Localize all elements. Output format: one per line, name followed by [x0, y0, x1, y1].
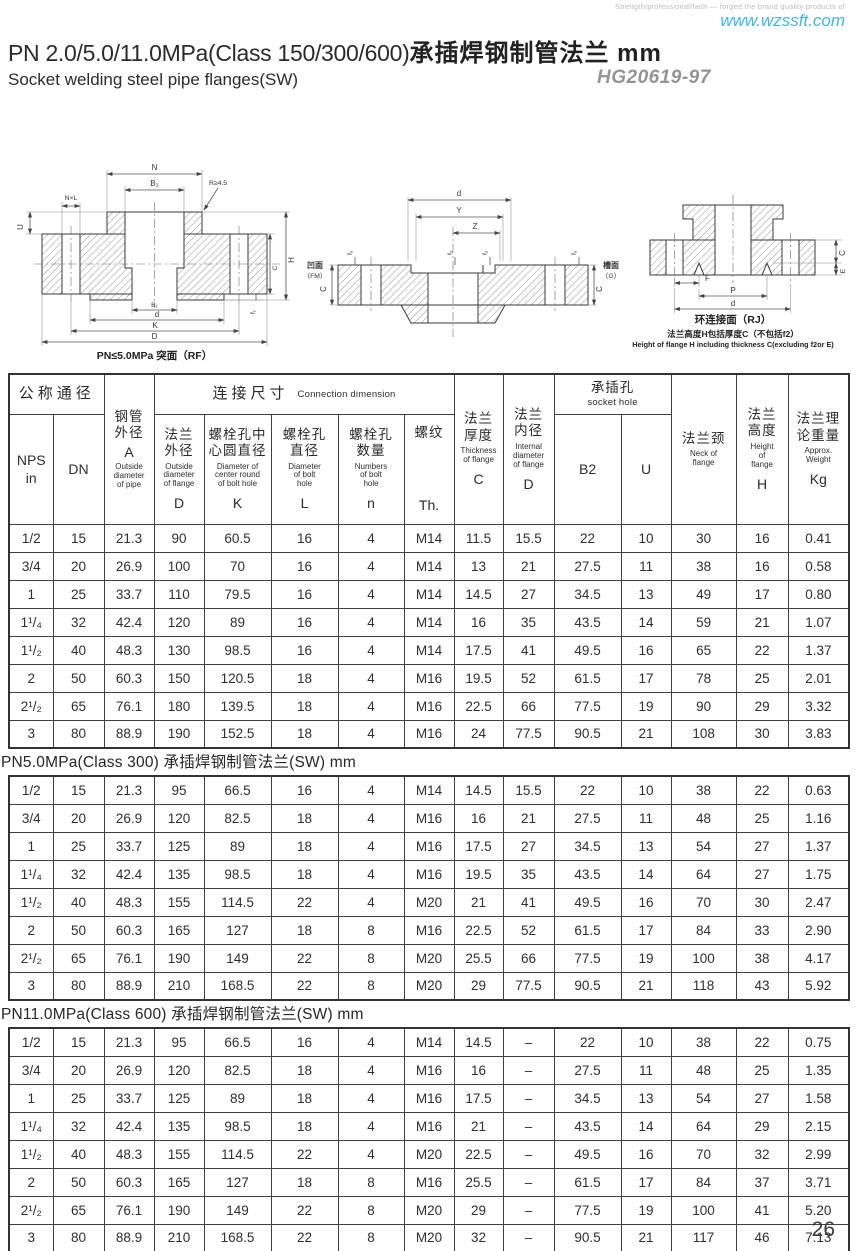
- cell-h: 22: [736, 636, 788, 664]
- cell-di: 77.5: [503, 972, 554, 1000]
- cell-dn: 80: [53, 720, 104, 748]
- table-row: 38088.9190152.5184M162477.590.521108303.…: [9, 720, 849, 748]
- cell-b2: 43.5: [554, 1112, 621, 1140]
- cell-di: 41: [503, 888, 554, 916]
- table-row: 1¹/₂4048.3155114.5224M20214149.51670302.…: [9, 888, 849, 916]
- cell-h: 25: [736, 804, 788, 832]
- cell-n: 4: [338, 580, 404, 608]
- cell-d: 190: [154, 720, 204, 748]
- cell-dn: 20: [53, 552, 104, 580]
- cell-kg: 2.99: [788, 1140, 849, 1168]
- cell-h: 30: [736, 888, 788, 916]
- cell-th: M20: [404, 1224, 454, 1251]
- cell-b2: 77.5: [554, 692, 621, 720]
- cell-h: 41: [736, 1196, 788, 1224]
- cell-nps: 2¹/₂: [9, 1196, 53, 1224]
- cell-kg: 2.01: [788, 664, 849, 692]
- cell-u: 16: [621, 1140, 671, 1168]
- cell-nps: 3: [9, 972, 53, 1000]
- header-u: U: [621, 414, 671, 524]
- cell-h: 22: [736, 776, 788, 804]
- cell-th: M20: [404, 944, 454, 972]
- cell-c: 13: [454, 552, 503, 580]
- dim-label-c-left: C: [319, 286, 328, 292]
- cell-u: 14: [621, 860, 671, 888]
- cell-h: 16: [736, 552, 788, 580]
- spec-table-block: 公称通径 钢管 外径AOutside diameter of pipe 连接尺寸…: [0, 373, 855, 1251]
- cell-d: 165: [154, 1168, 204, 1196]
- cell-n: 8: [338, 1196, 404, 1224]
- cell-l: 22: [271, 944, 338, 972]
- cell-h: 29: [736, 692, 788, 720]
- cell-l: 18: [271, 720, 338, 748]
- cell-h: 27: [736, 832, 788, 860]
- cell-h: 37: [736, 1168, 788, 1196]
- cell-k: 60.5: [204, 524, 271, 552]
- cell-th: M14: [404, 580, 454, 608]
- cell-k: 98.5: [204, 860, 271, 888]
- cell-neck: 59: [671, 608, 736, 636]
- cell-h: 38: [736, 944, 788, 972]
- table-row: 3/42026.910070164M14132127.51138160.58: [9, 552, 849, 580]
- cell-kg: 2.90: [788, 916, 849, 944]
- cell-u: 16: [621, 888, 671, 916]
- cell-h: 29: [736, 1112, 788, 1140]
- cell-nps: 3/4: [9, 1056, 53, 1084]
- dim-label-b1: B₁: [151, 302, 159, 309]
- cell-neck: 65: [671, 636, 736, 664]
- cell-c: 17.5: [454, 832, 503, 860]
- cell-b2: 27.5: [554, 1056, 621, 1084]
- cell-a: 33.7: [104, 1084, 154, 1112]
- cell-l: 22: [271, 1196, 338, 1224]
- cell-h: 33: [736, 916, 788, 944]
- flange-rj-section-drawing: C E F P d 环连接面（RJ） 法兰高度H包括厚度C（不包括f2） Hei…: [620, 155, 855, 350]
- cell-neck: 30: [671, 524, 736, 552]
- dim-label-k: K: [152, 321, 158, 330]
- cell-dn: 32: [53, 1112, 104, 1140]
- dim-label-r: R≥4.5: [209, 180, 227, 187]
- dim-label-p: P: [730, 286, 735, 295]
- cell-h: 46: [736, 1224, 788, 1251]
- cell-th: M16: [404, 916, 454, 944]
- cell-b2: 90.5: [554, 1224, 621, 1251]
- cell-d: 165: [154, 916, 204, 944]
- cell-d: 180: [154, 692, 204, 720]
- cell-u: 17: [621, 1168, 671, 1196]
- cell-nps: 3/4: [9, 804, 53, 832]
- cell-c: 24: [454, 720, 503, 748]
- cell-d: 210: [154, 1224, 204, 1251]
- cell-k: 168.5: [204, 972, 271, 1000]
- cell-kg: 4.17: [788, 944, 849, 972]
- cell-c: 25.5: [454, 944, 503, 972]
- cell-d: 90: [154, 524, 204, 552]
- cell-n: 4: [338, 804, 404, 832]
- dim-label-h: H: [287, 257, 296, 263]
- cell-n: 8: [338, 1224, 404, 1251]
- cell-dn: 50: [53, 664, 104, 692]
- face-label-g-en: （G）: [602, 272, 621, 280]
- cell-k: 79.5: [204, 580, 271, 608]
- cell-nps: 3/4: [9, 552, 53, 580]
- cell-a: 26.9: [104, 804, 154, 832]
- cell-c: 25.5: [454, 1168, 503, 1196]
- cell-di: 52: [503, 916, 554, 944]
- cell-dn: 50: [53, 916, 104, 944]
- cell-di: 15.5: [503, 524, 554, 552]
- cell-a: 76.1: [104, 944, 154, 972]
- cell-a: 88.9: [104, 1224, 154, 1251]
- table-row: 1¹/₄3242.413598.5184M1621–43.51464292.15: [9, 1112, 849, 1140]
- cell-c: 11.5: [454, 524, 503, 552]
- cell-k: 89: [204, 1084, 271, 1112]
- cell-nps: 1¹/₂: [9, 636, 53, 664]
- header-neck-of-flange: 法兰颈Neck of flange: [671, 374, 736, 524]
- cell-k: 66.5: [204, 1028, 271, 1056]
- cell-th: M14: [404, 636, 454, 664]
- cell-kg: 1.35: [788, 1056, 849, 1084]
- cell-a: 48.3: [104, 1140, 154, 1168]
- cell-nps: 2: [9, 1168, 53, 1196]
- cell-b2: 49.5: [554, 888, 621, 916]
- cell-l: 16: [271, 1028, 338, 1056]
- cell-d: 135: [154, 1112, 204, 1140]
- cell-n: 4: [338, 664, 404, 692]
- cell-di: –: [503, 1056, 554, 1084]
- page-subtitle: Socket welding steel pipe flanges(SW): [8, 70, 298, 90]
- cell-k: 149: [204, 1196, 271, 1224]
- cell-a: 88.9: [104, 972, 154, 1000]
- dim-label-y: Y: [456, 206, 462, 215]
- cell-u: 21: [621, 972, 671, 1000]
- cell-kg: 1.75: [788, 860, 849, 888]
- table-row: 25060.3165127188M1622.55261.51784332.90: [9, 916, 849, 944]
- cell-a: 60.3: [104, 916, 154, 944]
- cell-n: 4: [338, 832, 404, 860]
- cell-b2: 77.5: [554, 944, 621, 972]
- cell-l: 22: [271, 1140, 338, 1168]
- cell-k: 127: [204, 916, 271, 944]
- cell-d: 100: [154, 552, 204, 580]
- cell-th: M16: [404, 1056, 454, 1084]
- cell-k: 127: [204, 1168, 271, 1196]
- cell-di: 27: [503, 832, 554, 860]
- cell-nps: 1¹/₄: [9, 1112, 53, 1140]
- table-row: 1/21521.39566.5164M1414.515.5221038220.6…: [9, 776, 849, 804]
- table-row: 2¹/₂6576.1190149228M2025.56677.519100384…: [9, 944, 849, 972]
- cell-di: –: [503, 1084, 554, 1112]
- cell-kg: 3.32: [788, 692, 849, 720]
- brand-tagline: Strength/professional/faith — forged the…: [615, 2, 845, 11]
- cell-c: 19.5: [454, 860, 503, 888]
- cell-a: 48.3: [104, 888, 154, 916]
- cell-u: 21: [621, 1224, 671, 1251]
- dim-label-f2c: f₂: [482, 250, 489, 255]
- cell-nps: 1¹/₂: [9, 1140, 53, 1168]
- flange-rf-section-drawing: N B₂ N×L R≥4.5 U H C f₁ B₁ d K D PN≤5.0M…: [12, 150, 302, 365]
- cell-d: 190: [154, 1196, 204, 1224]
- cell-b2: 22: [554, 524, 621, 552]
- cell-a: 60.3: [104, 1168, 154, 1196]
- cell-nps: 1: [9, 580, 53, 608]
- cell-c: 16: [454, 804, 503, 832]
- cell-k: 89: [204, 608, 271, 636]
- cell-d: 210: [154, 972, 204, 1000]
- cell-nps: 3: [9, 1224, 53, 1251]
- cell-h: 43: [736, 972, 788, 1000]
- dim-label-u: U: [16, 224, 25, 230]
- table-row: 1¹/₂4048.3155114.5224M2022.5–49.51670322…: [9, 1140, 849, 1168]
- cell-nps: 2: [9, 664, 53, 692]
- cell-b2: 43.5: [554, 608, 621, 636]
- cell-nps: 1: [9, 1084, 53, 1112]
- cell-c: 22.5: [454, 1140, 503, 1168]
- dim-label-d3: d: [731, 299, 735, 308]
- dim-label-nxl: N×L: [65, 195, 78, 202]
- face-label-fm-cn: 凹面: [307, 261, 323, 270]
- cell-b2: 43.5: [554, 860, 621, 888]
- cell-h: 30: [736, 720, 788, 748]
- cell-u: 10: [621, 1028, 671, 1056]
- cell-n: 4: [338, 776, 404, 804]
- cell-k: 70: [204, 552, 271, 580]
- cell-di: 35: [503, 860, 554, 888]
- cell-dn: 20: [53, 804, 104, 832]
- cell-th: M20: [404, 1140, 454, 1168]
- cell-k: 114.5: [204, 1140, 271, 1168]
- cell-nps: 1¹/₂: [9, 888, 53, 916]
- cell-b2: 27.5: [554, 804, 621, 832]
- cell-c: 19.5: [454, 664, 503, 692]
- cell-b2: 61.5: [554, 664, 621, 692]
- cell-nps: 1: [9, 832, 53, 860]
- header-b2: B2: [554, 414, 621, 524]
- cell-h: 25: [736, 1056, 788, 1084]
- cell-d: 95: [154, 776, 204, 804]
- cell-a: 76.1: [104, 692, 154, 720]
- cell-l: 18: [271, 804, 338, 832]
- header-bolt-circle: 螺栓孔中 心圆直径Diameter of center round of bol…: [204, 414, 271, 524]
- cell-dn: 25: [53, 832, 104, 860]
- cell-neck: 70: [671, 1140, 736, 1168]
- table-row: 12533.711079.5164M1414.52734.51349170.80: [9, 580, 849, 608]
- cell-nps: 1/2: [9, 524, 53, 552]
- cell-neck: 49: [671, 580, 736, 608]
- cell-l: 18: [271, 1168, 338, 1196]
- cell-neck: 64: [671, 1112, 736, 1140]
- cell-nps: 2: [9, 916, 53, 944]
- page-title: PN 2.0/5.0/11.0MPa(Class 150/300/600)承插焊…: [8, 33, 662, 68]
- cell-dn: 80: [53, 1224, 104, 1251]
- header-connection-group: 连接尺寸Connection dimension: [154, 374, 454, 414]
- cell-d: 95: [154, 1028, 204, 1056]
- header-pipe-od: 钢管 外径AOutside diameter of pipe: [104, 374, 154, 524]
- cell-th: M20: [404, 1196, 454, 1224]
- cell-a: 33.7: [104, 832, 154, 860]
- cell-kg: 0.63: [788, 776, 849, 804]
- cell-h: 17: [736, 580, 788, 608]
- cell-n: 4: [338, 1056, 404, 1084]
- flange-fm-g-section-drawing: d Y Z f₂ f₂ f₂ f₂ C C 凹面 （FM） 槽面 （G）: [303, 165, 623, 350]
- dim-label-f2b: f₂: [447, 250, 454, 255]
- cell-b2: 34.5: [554, 580, 621, 608]
- standard-number: HG20619-97: [597, 67, 711, 89]
- cell-di: 66: [503, 944, 554, 972]
- cell-th: M14: [404, 524, 454, 552]
- cell-b2: 61.5: [554, 1168, 621, 1196]
- table-row: 38088.9210168.5228M2032–90.521117467.13: [9, 1224, 849, 1251]
- cell-kg: 1.37: [788, 832, 849, 860]
- cell-d: 150: [154, 664, 204, 692]
- cell-kg: 1.37: [788, 636, 849, 664]
- header-approx-weight: 法兰理 论重量Approx. WeightKg: [788, 374, 849, 524]
- section-class300-body: 1/21521.39566.5164M1414.515.5221038220.6…: [9, 776, 849, 1000]
- cell-di: –: [503, 1168, 554, 1196]
- cell-c: 21: [454, 1112, 503, 1140]
- cell-di: 77.5: [503, 720, 554, 748]
- cell-neck: 70: [671, 888, 736, 916]
- dim-label-f2a: f₂: [347, 250, 354, 255]
- cell-kg: 2.15: [788, 1112, 849, 1140]
- header-flange-height: 法兰 高度Height of flangeH: [736, 374, 788, 524]
- cell-nps: 1/2: [9, 776, 53, 804]
- cell-di: –: [503, 1140, 554, 1168]
- dim-label-d: d: [155, 310, 159, 319]
- cell-u: 10: [621, 776, 671, 804]
- cell-neck: 38: [671, 776, 736, 804]
- cell-di: 21: [503, 552, 554, 580]
- cell-th: M16: [404, 860, 454, 888]
- table-row: 1/21521.39060.5164M1411.515.5221030160.4…: [9, 524, 849, 552]
- cell-neck: 48: [671, 1056, 736, 1084]
- cell-n: 4: [338, 636, 404, 664]
- cell-th: M16: [404, 804, 454, 832]
- cell-neck: 38: [671, 1028, 736, 1056]
- section-title-class300: PN5.0MPa(Class 300) 承插焊钢制管法兰(SW) mm: [0, 749, 855, 775]
- header-flange-od: 法兰 外径Outside diameter of flangeD: [154, 414, 204, 524]
- cell-neck: 54: [671, 832, 736, 860]
- cell-neck: 64: [671, 860, 736, 888]
- dim-label-c: C: [272, 265, 279, 270]
- cell-b2: 77.5: [554, 1196, 621, 1224]
- cell-c: 17.5: [454, 1084, 503, 1112]
- cell-k: 149: [204, 944, 271, 972]
- dim-label-f2d: f₂: [571, 250, 578, 255]
- cell-d: 155: [154, 888, 204, 916]
- cell-b2: 22: [554, 1028, 621, 1056]
- spec-table-header: 公称通径 钢管 外径AOutside diameter of pipe 连接尺寸…: [9, 374, 849, 524]
- header-bolt-hole-diameter: 螺栓孔 直径Diameter of bolt holeL: [271, 414, 338, 524]
- section-class150-body: 1/21521.39060.5164M1411.515.5221030160.4…: [9, 524, 849, 748]
- cell-th: M20: [404, 888, 454, 916]
- cell-a: 21.3: [104, 776, 154, 804]
- cell-kg: 5.92: [788, 972, 849, 1000]
- cell-di: 66: [503, 692, 554, 720]
- cell-dn: 32: [53, 608, 104, 636]
- face-label-fm-en: （FM）: [303, 272, 326, 280]
- cell-neck: 117: [671, 1224, 736, 1251]
- cell-k: 82.5: [204, 1056, 271, 1084]
- cell-n: 8: [338, 1168, 404, 1196]
- page-title-en: PN 2.0/5.0/11.0MPa(Class 150/300/600): [8, 40, 409, 66]
- cell-nps: 3: [9, 720, 53, 748]
- cell-di: 52: [503, 664, 554, 692]
- website-url: www.wzssft.com: [720, 11, 845, 31]
- cell-dn: 40: [53, 636, 104, 664]
- cell-k: 98.5: [204, 1112, 271, 1140]
- cell-nps: 1/2: [9, 1028, 53, 1056]
- cell-a: 42.4: [104, 1112, 154, 1140]
- spec-table-class300: 1/21521.39566.5164M1414.515.5221038220.6…: [8, 775, 850, 1001]
- cell-n: 4: [338, 524, 404, 552]
- cell-b2: 22: [554, 776, 621, 804]
- cell-nps: 2¹/₂: [9, 692, 53, 720]
- cell-u: 19: [621, 692, 671, 720]
- cell-dn: 20: [53, 1056, 104, 1084]
- table-row: 2¹/₂6576.1190149228M2029–77.519100415.20: [9, 1196, 849, 1224]
- cell-kg: 3.83: [788, 720, 849, 748]
- cell-n: 8: [338, 944, 404, 972]
- cell-th: M14: [404, 1028, 454, 1056]
- cell-n: 8: [338, 916, 404, 944]
- cell-kg: 0.80: [788, 580, 849, 608]
- cell-c: 14.5: [454, 1028, 503, 1056]
- cell-dn: 50: [53, 1168, 104, 1196]
- cell-d: 155: [154, 1140, 204, 1168]
- cell-n: 4: [338, 1084, 404, 1112]
- cell-u: 19: [621, 944, 671, 972]
- drawing-rj-note-en: Height of flange H including thickness C…: [632, 340, 834, 349]
- cell-d: 130: [154, 636, 204, 664]
- catalog-page: Strength/professional/faith — forged the…: [0, 0, 855, 1251]
- cell-u: 13: [621, 832, 671, 860]
- cell-l: 22: [271, 972, 338, 1000]
- cell-a: 26.9: [104, 1056, 154, 1084]
- cell-l: 16: [271, 552, 338, 580]
- drawing-rj-note-cn: 法兰高度H包括厚度C（不包括f2）: [667, 328, 799, 339]
- cell-l: 22: [271, 1224, 338, 1251]
- table-row: 3/42026.912082.5184M16162127.51148251.16: [9, 804, 849, 832]
- cell-n: 4: [338, 608, 404, 636]
- cell-b2: 27.5: [554, 552, 621, 580]
- cell-nps: 2¹/₂: [9, 944, 53, 972]
- header-flange-thickness: 法兰 厚度Thickness of flangeC: [454, 374, 503, 524]
- table-row: 12533.712589184M1617.5–34.51354271.58: [9, 1084, 849, 1112]
- cell-neck: 100: [671, 944, 736, 972]
- page-number: 26: [812, 1218, 835, 1242]
- cell-a: 88.9: [104, 720, 154, 748]
- cell-u: 17: [621, 916, 671, 944]
- cell-a: 42.4: [104, 860, 154, 888]
- cell-n: 4: [338, 1028, 404, 1056]
- cell-neck: 48: [671, 804, 736, 832]
- cell-kg: 3.71: [788, 1168, 849, 1196]
- cell-l: 18: [271, 1084, 338, 1112]
- cell-l: 16: [271, 608, 338, 636]
- header-nominal-size: 公称通径: [9, 374, 104, 414]
- cell-kg: 1.16: [788, 804, 849, 832]
- cell-u: 13: [621, 580, 671, 608]
- header-internal-diameter: 法兰 内径Internal diameter of flangeD: [503, 374, 554, 524]
- cell-d: 135: [154, 860, 204, 888]
- cell-u: 11: [621, 552, 671, 580]
- table-row: 2¹/₂6576.1180139.5184M1622.56677.5199029…: [9, 692, 849, 720]
- cell-k: 114.5: [204, 888, 271, 916]
- cell-h: 32: [736, 1140, 788, 1168]
- cell-di: –: [503, 1224, 554, 1251]
- cell-d: 110: [154, 580, 204, 608]
